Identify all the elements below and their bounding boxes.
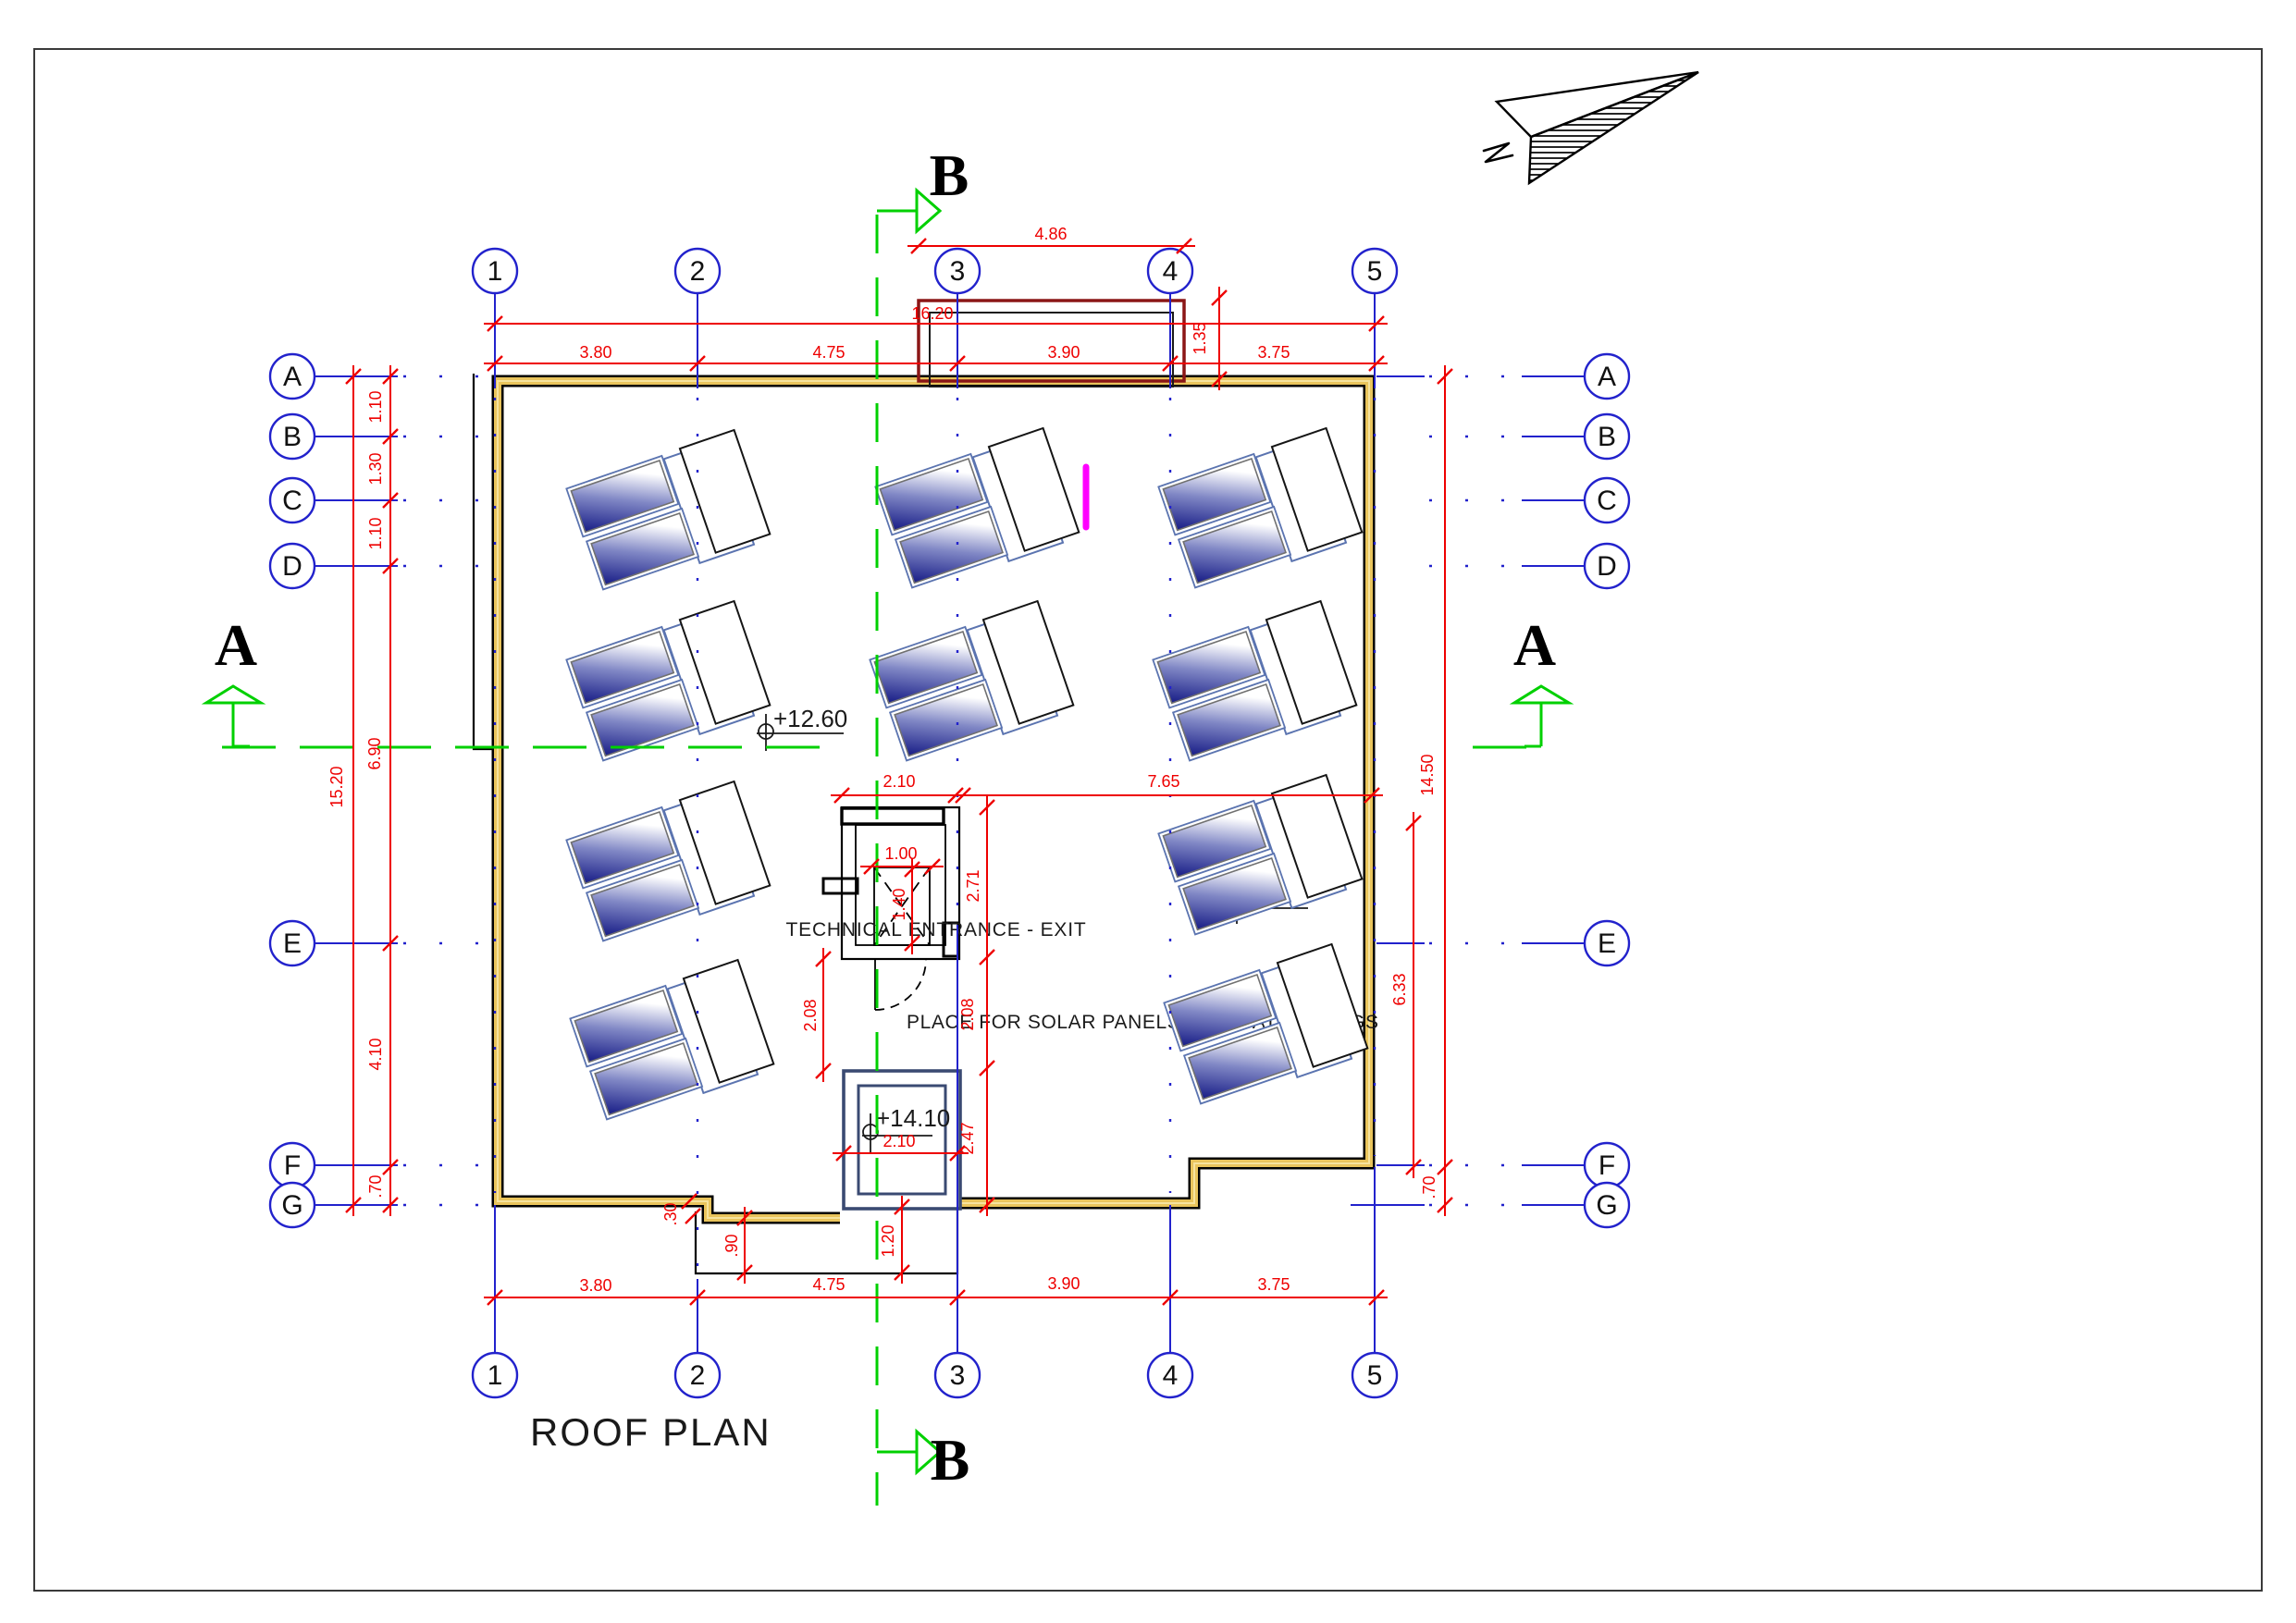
dimension-label: 3.75 bbox=[1257, 1275, 1290, 1294]
grid-bubble-label: C bbox=[1597, 486, 1617, 516]
dimension-label: 2.08 bbox=[958, 998, 977, 1030]
roof-plan-drawing: TECHNICAL ENTRANCE - EXIT PLACE FOR SOLA… bbox=[0, 0, 2296, 1623]
dimension-label: .70 bbox=[1420, 1175, 1438, 1199]
solar-panel-group bbox=[1158, 775, 1364, 941]
technical-entrance-label: TECHNICAL ENTRANCE - EXIT bbox=[786, 919, 1087, 941]
entrance-stub-left bbox=[823, 879, 858, 893]
dimension-label: 16.20 bbox=[911, 304, 953, 323]
dimension-label: 1.10 bbox=[366, 517, 385, 549]
grid-bubble-label: 2 bbox=[690, 256, 706, 287]
grid-bubble-label: C bbox=[282, 486, 302, 516]
dimension-label: 4.75 bbox=[812, 1275, 845, 1294]
section-b-label-bottom: B bbox=[931, 1427, 970, 1493]
grid-bubble-label: 4 bbox=[1163, 1360, 1179, 1391]
grid-bubble-label: 1 bbox=[488, 256, 503, 287]
dimension-label: 1.10 bbox=[366, 390, 385, 423]
dimension-label: 2.08 bbox=[801, 999, 820, 1031]
level-value: +12.60 bbox=[773, 705, 847, 732]
dimension-label: 2.10 bbox=[883, 1132, 915, 1150]
door-swing-arc bbox=[875, 959, 926, 1010]
dimension-label: 6.33 bbox=[1390, 973, 1409, 1005]
solar-panel-group bbox=[566, 601, 772, 768]
grid-bubble-label: G bbox=[281, 1190, 302, 1221]
dimension-label: 2.71 bbox=[964, 869, 982, 902]
grid-bubble-label: D bbox=[282, 551, 302, 582]
dimension-label: 3.90 bbox=[1047, 343, 1080, 362]
dimension-label: 4.10 bbox=[366, 1038, 385, 1070]
dimension-label: 1.40 bbox=[890, 888, 908, 920]
grid-bubble-label: D bbox=[1597, 551, 1617, 582]
solar-panel-group bbox=[1164, 944, 1369, 1111]
grid-bubble-label: A bbox=[1598, 362, 1616, 392]
north-arrow-tail bbox=[1484, 143, 1512, 162]
dimension-label: 3.80 bbox=[579, 343, 611, 362]
dimension-label: 14.50 bbox=[1418, 754, 1437, 795]
dimension-label: 1.30 bbox=[366, 452, 385, 485]
dimension-label: 1.20 bbox=[879, 1224, 897, 1257]
solar-panel-group bbox=[570, 960, 775, 1126]
section-a-arrow-left bbox=[206, 686, 261, 746]
grid-bubble-label: 3 bbox=[950, 1360, 966, 1391]
grid-bubble-label: 5 bbox=[1367, 256, 1383, 287]
section-a-arrow-right bbox=[1514, 686, 1569, 746]
grid-solid-lines bbox=[315, 293, 1585, 1353]
dimension-label: 1.00 bbox=[884, 844, 917, 863]
dimension-label: .30 bbox=[661, 1202, 680, 1225]
dimension-label: .70 bbox=[366, 1174, 385, 1198]
solar-panel-group bbox=[566, 781, 772, 948]
section-a-label-left: A bbox=[215, 612, 257, 678]
dimension-label: 1.35 bbox=[1191, 322, 1209, 354]
grid-bubble-label: 5 bbox=[1367, 1360, 1383, 1391]
grid-bubble-label: B bbox=[283, 422, 302, 452]
north-arrow-icon bbox=[1484, 72, 1698, 183]
dimension-label: 6.90 bbox=[365, 737, 384, 769]
dimension-label: 4.86 bbox=[1034, 225, 1067, 243]
solar-panel-group bbox=[870, 601, 1075, 768]
grid-bubble-label: 1 bbox=[488, 1360, 503, 1391]
dimension-label: 7.65 bbox=[1147, 772, 1179, 791]
dimension-label: 15.20 bbox=[327, 766, 346, 807]
drawing-canvas: TECHNICAL ENTRANCE - EXIT PLACE FOR SOLA… bbox=[0, 0, 2296, 1623]
grid-bubble-label: 4 bbox=[1163, 256, 1179, 287]
solar-panel-group bbox=[875, 428, 1080, 595]
grid-bubble-label: E bbox=[1598, 928, 1616, 959]
drawing-title: ROOF PLAN bbox=[530, 1410, 772, 1454]
drawing-frame bbox=[34, 49, 2262, 1591]
solar-panel-group bbox=[1153, 601, 1358, 768]
grid-bubble-label: B bbox=[1598, 422, 1616, 452]
dimension-label: 2.10 bbox=[883, 772, 915, 791]
grid-bubble-label: F bbox=[284, 1150, 301, 1181]
level-value: +14.10 bbox=[876, 1104, 950, 1132]
grid-bubble-label: G bbox=[1596, 1190, 1617, 1221]
dimension-label: 3.80 bbox=[579, 1276, 611, 1295]
grid-bubble-label: 3 bbox=[950, 256, 966, 287]
section-a-label-right: A bbox=[1513, 612, 1556, 678]
solar-panel-group bbox=[566, 430, 772, 596]
dimension-label: 2.47 bbox=[958, 1122, 977, 1154]
dimension-label: 3.75 bbox=[1257, 343, 1290, 362]
grid-bubble-label: A bbox=[283, 362, 302, 392]
dimension-label: .90 bbox=[722, 1234, 741, 1257]
grid-bubble-label: E bbox=[283, 928, 302, 959]
grid-bubble-label: 2 bbox=[690, 1360, 706, 1391]
dimension-label: 4.75 bbox=[812, 343, 845, 362]
dimension-label: 3.90 bbox=[1047, 1274, 1080, 1293]
grid-bubble-label: F bbox=[1599, 1150, 1615, 1181]
level-mark-12-60: +12.60 bbox=[757, 705, 847, 751]
solar-panel-group bbox=[1158, 428, 1364, 595]
roof-edge-line bbox=[474, 374, 493, 749]
section-b-label-top: B bbox=[930, 142, 969, 208]
